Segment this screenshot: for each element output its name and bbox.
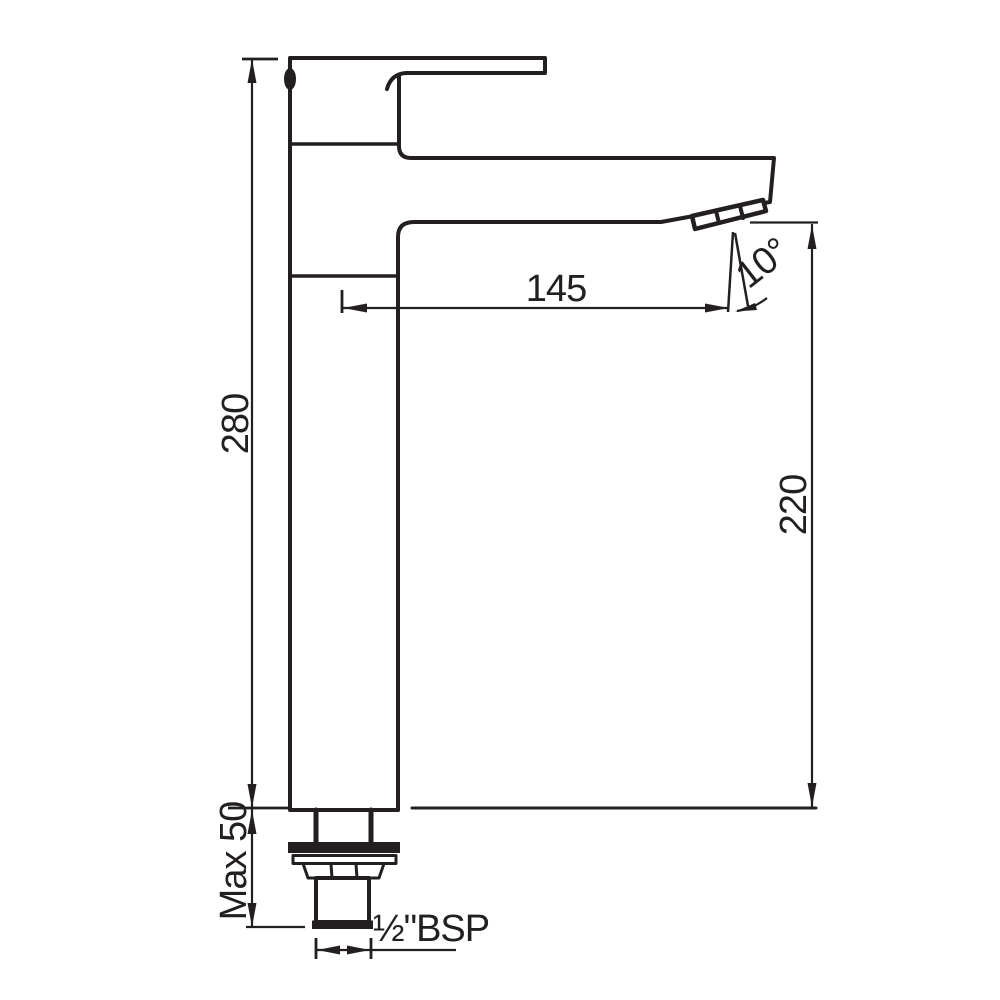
faucet-outline	[284, 58, 774, 810]
dim-220-arrow-down	[808, 783, 817, 807]
rubber-washer	[288, 842, 400, 853]
dim-220-label: 220	[773, 475, 815, 535]
aerator	[692, 200, 766, 229]
dim-280-arrow-up	[248, 59, 257, 83]
dim-angle-label: 10°	[728, 230, 797, 297]
dim-220-arrow-up	[808, 225, 817, 249]
dim-max50-label: Max 50	[213, 802, 255, 921]
handle-pivot-pin	[284, 68, 296, 90]
nut-outline	[303, 864, 384, 879]
fixing-nut	[303, 864, 384, 879]
nut-facet-1	[331, 864, 332, 878]
drawing-canvas: 280 Max 50 220 145 10°	[0, 0, 1000, 1000]
dim-145-arrow-right	[705, 304, 729, 313]
threaded-shank	[316, 878, 369, 922]
dim-bsp-arrow-right	[347, 946, 370, 955]
dim-bsp-arrow-left	[317, 946, 340, 955]
aerator-band	[692, 200, 766, 229]
dimension-outlet-angle: 10°	[728, 230, 797, 312]
dimension-max-deck-thickness: Max 50	[213, 802, 305, 927]
dim-145-label: 145	[526, 268, 586, 310]
dimension-outlet-height: 220	[750, 223, 818, 808]
dimension-overall-height: 280	[215, 59, 288, 808]
handle-and-body-left-outline	[290, 58, 545, 810]
faucet-dimension-drawing: 280 Max 50 220 145 10°	[0, 0, 1000, 1000]
shank-end	[312, 921, 373, 930]
spout-and-riser-outline	[398, 75, 774, 810]
angle-arc-arrowhead	[735, 303, 757, 312]
dimension-spout-reach: 145	[342, 268, 729, 313]
dim-bsp-label: ½"BSP	[373, 908, 489, 950]
dim-145-arrow-left	[343, 304, 367, 313]
angle-reference-line-vertical	[728, 232, 733, 312]
dim-280-label: 280	[215, 394, 257, 454]
nut-facet-2	[356, 864, 357, 878]
